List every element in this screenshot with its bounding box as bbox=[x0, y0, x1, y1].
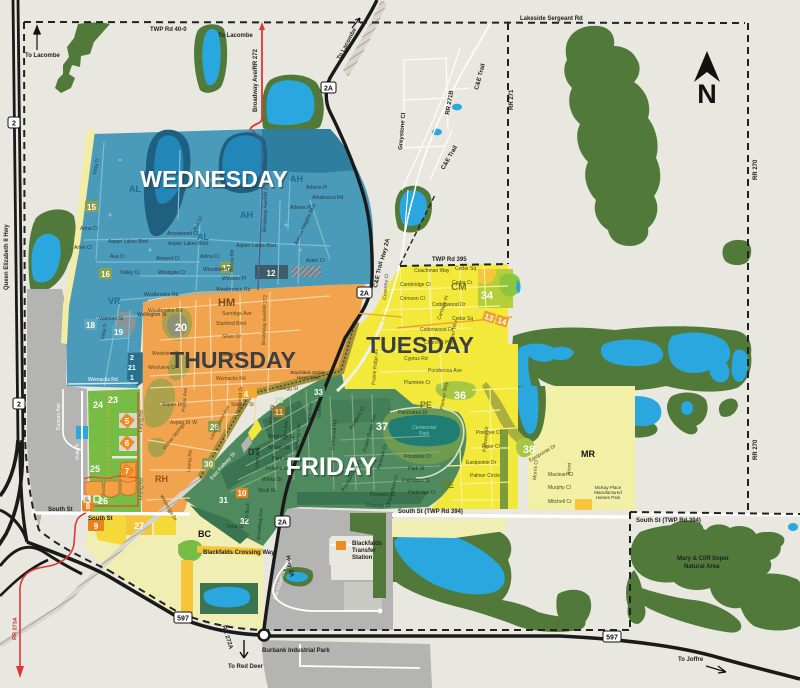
svg-text:23: 23 bbox=[108, 395, 118, 405]
svg-text:Almond Cr: Almond Cr bbox=[156, 256, 180, 262]
svg-text:BC: BC bbox=[198, 529, 211, 539]
svg-text:11: 11 bbox=[275, 408, 284, 417]
svg-text:Aspen Dr: Aspen Dr bbox=[162, 402, 183, 408]
svg-text:18: 18 bbox=[86, 321, 95, 330]
svg-text:Westbrooke Rd: Westbrooke Rd bbox=[216, 287, 251, 293]
svg-text:Leung Rd: Leung Rd bbox=[138, 410, 145, 432]
svg-text:Panorama Dr: Panorama Dr bbox=[398, 410, 428, 416]
svg-text:Winston Pl: Winston Pl bbox=[222, 276, 246, 282]
svg-text:Lakeside Sergeant Rd: Lakeside Sergeant Rd bbox=[520, 16, 583, 22]
svg-text:Winks St: Winks St bbox=[262, 477, 282, 483]
svg-text:1: 1 bbox=[130, 375, 134, 382]
svg-text:597: 597 bbox=[606, 635, 618, 642]
svg-text:Athabasca Rd: Athabasca Rd bbox=[312, 195, 344, 201]
svg-text:South St (TWP Rd 394): South St (TWP Rd 394) bbox=[398, 509, 463, 515]
svg-text:Natural Area: Natural Area bbox=[684, 564, 720, 570]
svg-text:RR 270: RR 270 bbox=[753, 159, 759, 180]
svg-text:To Lacombe: To Lacombe bbox=[218, 33, 254, 39]
svg-text:Westview Cr: Westview Cr bbox=[152, 351, 180, 357]
svg-text:VR: VR bbox=[108, 296, 121, 306]
svg-text:Silver Dr: Silver Dr bbox=[222, 334, 242, 340]
svg-text:Trout St: Trout St bbox=[226, 524, 244, 530]
svg-text:Athens Pl: Athens Pl bbox=[306, 185, 327, 191]
svg-text:2: 2 bbox=[12, 121, 16, 128]
svg-text:To Red Deer: To Red Deer bbox=[228, 664, 264, 670]
svg-text:Home Park: Home Park bbox=[297, 375, 320, 380]
svg-text:Blackfalds: Blackfalds bbox=[352, 541, 383, 547]
svg-text:THURSDAY: THURSDAY bbox=[170, 347, 296, 373]
svg-text:4: 4 bbox=[244, 390, 249, 399]
svg-text:19: 19 bbox=[114, 328, 123, 337]
svg-text:20: 20 bbox=[175, 322, 187, 334]
svg-text:Womacks Rd: Womacks Rd bbox=[216, 376, 246, 382]
svg-text:Blackfalds Crossing Way: Blackfalds Crossing Way bbox=[203, 550, 275, 556]
svg-text:Aspen Lakes Blvd: Aspen Lakes Blvd bbox=[236, 243, 276, 249]
svg-text:10: 10 bbox=[238, 489, 247, 498]
svg-text:7: 7 bbox=[125, 467, 130, 476]
svg-text:Mary & Cliff Soper: Mary & Cliff Soper bbox=[677, 556, 730, 562]
svg-text:Wilson St: Wilson St bbox=[268, 445, 290, 451]
svg-text:Westbrooke Rd: Westbrooke Rd bbox=[148, 308, 183, 314]
svg-text:Eastpointe Dr: Eastpointe Dr bbox=[466, 460, 497, 466]
svg-text:Cedar Sq: Cedar Sq bbox=[455, 266, 476, 272]
svg-text:Pondside Cr: Pondside Cr bbox=[404, 454, 432, 460]
svg-text:2A: 2A bbox=[278, 520, 287, 527]
svg-text:Arlen Cl: Arlen Cl bbox=[74, 245, 92, 251]
svg-text:Willow Rd: Willow Rd bbox=[229, 249, 236, 272]
svg-text:Ponderosa Ave: Ponderosa Ave bbox=[428, 368, 462, 374]
svg-text:Park St: Park St bbox=[272, 456, 289, 462]
svg-text:Cambridge Cl: Cambridge Cl bbox=[400, 282, 431, 288]
svg-text:Queen Elizabeth II Hwy: Queen Elizabeth II Hwy bbox=[4, 224, 10, 290]
svg-text:Burbank Industrial Park: Burbank Industrial Park bbox=[262, 648, 330, 654]
svg-text:TWP Rd 395: TWP Rd 395 bbox=[432, 257, 467, 263]
svg-text:597: 597 bbox=[177, 616, 189, 623]
svg-text:RH: RH bbox=[155, 474, 168, 484]
svg-text:Coachman Way: Coachman Way bbox=[414, 268, 450, 274]
svg-text:Broadway Ave/RR 272: Broadway Ave/RR 272 bbox=[253, 48, 259, 112]
svg-text:Anna Cl: Anna Cl bbox=[80, 226, 98, 232]
svg-text:RR 270: RR 270 bbox=[753, 439, 759, 460]
svg-text:Sunrise Cl: Sunrise Cl bbox=[222, 352, 245, 358]
svg-text:Shull St: Shull St bbox=[258, 488, 276, 494]
svg-text:Valley Cr: Valley Cr bbox=[120, 270, 140, 276]
svg-text:Aspen Lakes Blvd: Aspen Lakes Blvd bbox=[108, 239, 148, 245]
svg-text:AH: AH bbox=[240, 210, 253, 220]
svg-text:Womacks Rd: Womacks Rd bbox=[88, 377, 118, 383]
svg-text:Stanford Blvd: Stanford Blvd bbox=[216, 321, 246, 327]
svg-text:Crimson Cl: Crimson Cl bbox=[400, 296, 425, 302]
svg-text:33: 33 bbox=[314, 388, 323, 397]
svg-text:Westgate Cr: Westgate Cr bbox=[158, 270, 186, 276]
svg-text:Aztec Cr: Aztec Cr bbox=[306, 258, 326, 264]
svg-text:36: 36 bbox=[454, 390, 466, 402]
svg-text:South St (TWP Rd 394): South St (TWP Rd 394) bbox=[636, 518, 701, 524]
svg-text:Park: Park bbox=[419, 431, 430, 437]
svg-text:Ava Cr: Ava Cr bbox=[110, 254, 126, 260]
svg-text:AL: AL bbox=[129, 184, 141, 194]
svg-text:24: 24 bbox=[93, 400, 103, 410]
svg-text:5: 5 bbox=[125, 417, 130, 426]
svg-text:34: 34 bbox=[481, 290, 494, 302]
svg-text:Brent: Brent bbox=[566, 462, 573, 475]
svg-text:2A: 2A bbox=[324, 86, 333, 93]
svg-text:South St: South St bbox=[48, 507, 73, 513]
svg-text:12: 12 bbox=[267, 269, 276, 278]
svg-text:25: 25 bbox=[90, 464, 100, 474]
svg-text:TUESDAY: TUESDAY bbox=[366, 332, 474, 358]
svg-text:Cottonwood Dr: Cottonwood Dr bbox=[432, 302, 466, 308]
svg-text:9: 9 bbox=[94, 522, 99, 531]
svg-text:Woodbine Cl: Woodbine Cl bbox=[203, 267, 232, 273]
svg-text:Cyprus Rd: Cyprus Rd bbox=[404, 356, 428, 362]
svg-text:15: 15 bbox=[87, 203, 96, 212]
svg-text:Parkridge Cr: Parkridge Cr bbox=[408, 490, 436, 496]
svg-text:Churchill Pl: Churchill Pl bbox=[424, 340, 449, 346]
svg-text:RR 273A: RR 273A bbox=[12, 617, 19, 640]
svg-text:Station: Station bbox=[352, 555, 373, 561]
svg-text:Mitchell Cr: Mitchell Cr bbox=[548, 499, 572, 505]
svg-text:To Lacombe: To Lacombe bbox=[25, 53, 61, 59]
svg-text:TWP Rd 40-0: TWP Rd 40-0 bbox=[150, 27, 187, 33]
svg-text:8: 8 bbox=[86, 502, 91, 511]
svg-text:Leung Rd: Leung Rd bbox=[138, 478, 145, 500]
svg-text:FRIDAY: FRIDAY bbox=[286, 453, 377, 481]
svg-text:Arrowwood Cl: Arrowwood Cl bbox=[167, 231, 198, 237]
svg-text:Duncan Ave: Duncan Ave bbox=[56, 403, 62, 430]
svg-text:Plumtree Cr: Plumtree Cr bbox=[404, 380, 431, 386]
svg-text:To Joffre: To Joffre bbox=[678, 657, 704, 663]
svg-text:Transfer: Transfer bbox=[352, 548, 376, 554]
svg-text:South St: South St bbox=[88, 516, 113, 522]
svg-text:Valmont St: Valmont St bbox=[99, 316, 124, 322]
svg-text:Vista Tr: Vista Tr bbox=[75, 443, 81, 460]
svg-text:27: 27 bbox=[134, 521, 144, 531]
svg-text:Westbrooke Rd: Westbrooke Rd bbox=[144, 292, 179, 298]
svg-text:29: 29 bbox=[274, 395, 284, 405]
svg-text:Sunridge Ave: Sunridge Ave bbox=[222, 311, 252, 317]
svg-text:AH: AH bbox=[290, 174, 303, 184]
svg-text:Cedar Cr: Cedar Cr bbox=[452, 280, 473, 286]
svg-text:Indiana St: Indiana St bbox=[266, 466, 289, 472]
svg-text:30: 30 bbox=[204, 460, 213, 469]
svg-text:PE: PE bbox=[420, 400, 432, 410]
svg-text:2: 2 bbox=[130, 355, 134, 362]
svg-text:37: 37 bbox=[376, 421, 388, 433]
svg-text:2A: 2A bbox=[360, 291, 369, 298]
svg-text:PE: PE bbox=[442, 480, 454, 490]
svg-text:Palmer Circle: Palmer Circle bbox=[470, 473, 500, 479]
svg-text:HM: HM bbox=[218, 297, 235, 309]
svg-text:RR 271: RR 271 bbox=[509, 89, 515, 110]
svg-text:21: 21 bbox=[128, 365, 136, 372]
svg-text:Park St: Park St bbox=[408, 466, 425, 472]
svg-text:Homes Park: Homes Park bbox=[596, 495, 622, 500]
svg-text:6: 6 bbox=[125, 439, 130, 448]
svg-text:Adina Cl: Adina Cl bbox=[200, 254, 219, 260]
svg-text:Gregg St: Gregg St bbox=[278, 386, 299, 392]
svg-text:31: 31 bbox=[219, 496, 228, 505]
svg-text:MR: MR bbox=[581, 449, 595, 459]
svg-text:Murphy Cl: Murphy Cl bbox=[548, 485, 571, 491]
svg-text:N: N bbox=[697, 79, 717, 109]
svg-text:Westview Cr: Westview Cr bbox=[148, 365, 176, 371]
svg-text:Cedar Sq: Cedar Sq bbox=[452, 316, 473, 322]
svg-text:Aspen Lakes Blvd: Aspen Lakes Blvd bbox=[168, 241, 208, 247]
svg-text:Palisades St: Palisades St bbox=[402, 478, 430, 484]
svg-text:2: 2 bbox=[17, 402, 21, 409]
svg-text:16: 16 bbox=[101, 270, 110, 279]
svg-text:Cottonwood Dr: Cottonwood Dr bbox=[420, 327, 454, 333]
svg-text:38: 38 bbox=[523, 444, 535, 456]
